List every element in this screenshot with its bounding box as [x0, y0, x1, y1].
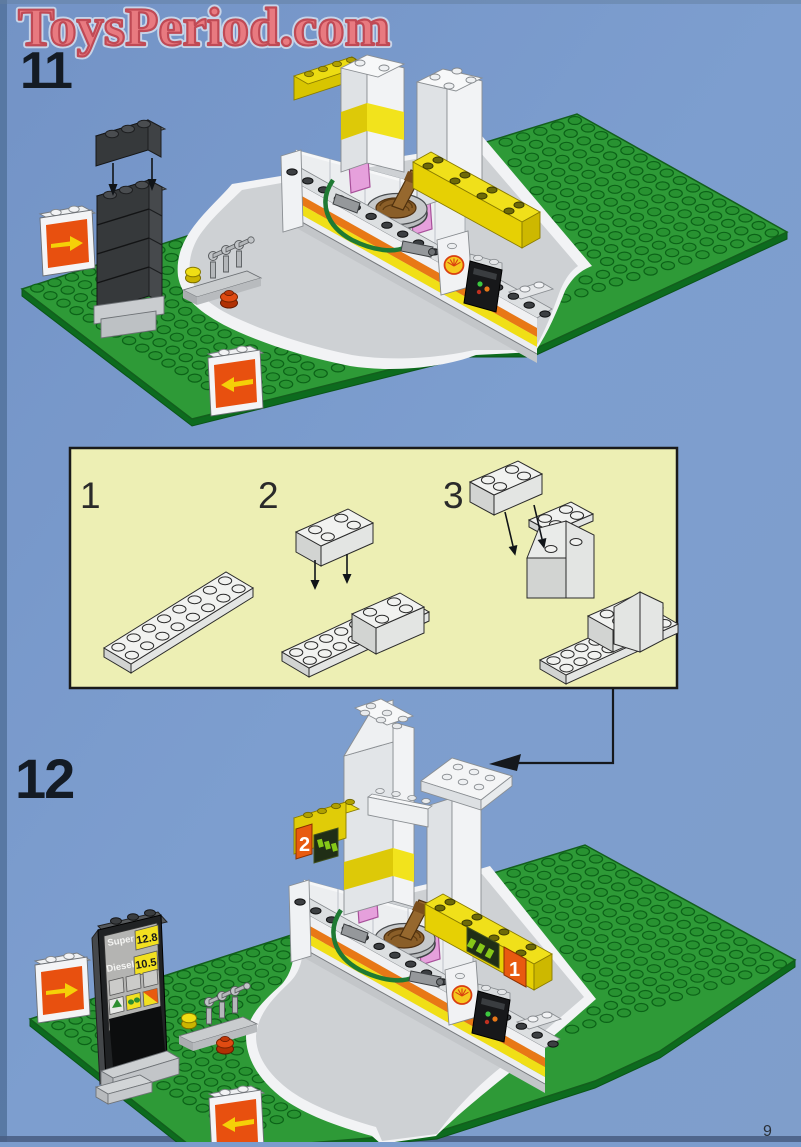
svg-text:1: 1: [80, 475, 101, 516]
svg-text:ToysPeriod.com: ToysPeriod.com: [18, 0, 390, 57]
svg-text:11: 11: [20, 42, 72, 100]
svg-text:12: 12: [15, 747, 73, 810]
svg-text:2: 2: [258, 475, 279, 516]
svg-text:1: 1: [509, 959, 520, 981]
svg-text:2: 2: [299, 834, 310, 856]
svg-text:3: 3: [443, 475, 464, 516]
svg-text:9: 9: [763, 1123, 772, 1140]
